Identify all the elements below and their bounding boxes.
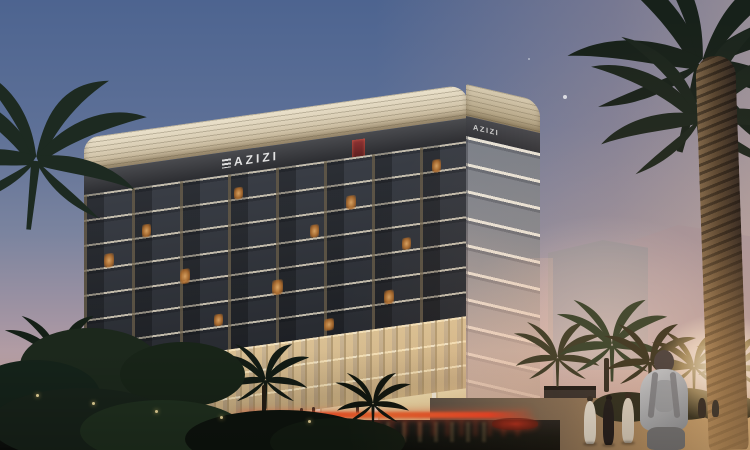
distant-silhouette bbox=[712, 400, 719, 417]
lit-window bbox=[104, 253, 114, 268]
person-body bbox=[698, 398, 706, 418]
lit-window bbox=[402, 237, 411, 250]
person-body bbox=[622, 398, 634, 443]
azizi-logo-icon bbox=[222, 158, 231, 168]
lit-window bbox=[310, 224, 319, 238]
man-light-kandura bbox=[621, 393, 635, 445]
lit-window bbox=[346, 195, 356, 210]
foreground-walker bbox=[636, 350, 694, 450]
scene-canvas: AZIZI AZIZI bbox=[0, 0, 750, 450]
garden-light bbox=[92, 402, 95, 405]
walker-legs bbox=[647, 427, 685, 450]
person-body bbox=[712, 400, 719, 417]
garden-light bbox=[36, 394, 39, 397]
lit-window bbox=[432, 159, 441, 173]
left-edge-palm bbox=[0, 50, 161, 248]
woman-black-abaya bbox=[602, 395, 615, 447]
lit-window bbox=[384, 289, 394, 304]
foreground-garden bbox=[0, 320, 370, 450]
man-white-kandura bbox=[583, 396, 597, 446]
person-shadow bbox=[602, 443, 615, 447]
garden-light bbox=[220, 416, 223, 419]
front-sign-text: AZIZI bbox=[234, 149, 279, 170]
person-shadow bbox=[583, 442, 597, 446]
lit-window bbox=[234, 187, 243, 200]
person-shadow bbox=[621, 441, 635, 445]
lit-window bbox=[180, 268, 190, 284]
person-body bbox=[603, 399, 614, 445]
distant-silhouette bbox=[698, 398, 706, 418]
garden-light bbox=[308, 420, 311, 423]
garden-light bbox=[155, 410, 158, 413]
lit-window bbox=[272, 279, 283, 296]
person-body bbox=[584, 401, 596, 444]
star-dot bbox=[528, 58, 530, 60]
red-flower-planter bbox=[492, 418, 538, 430]
